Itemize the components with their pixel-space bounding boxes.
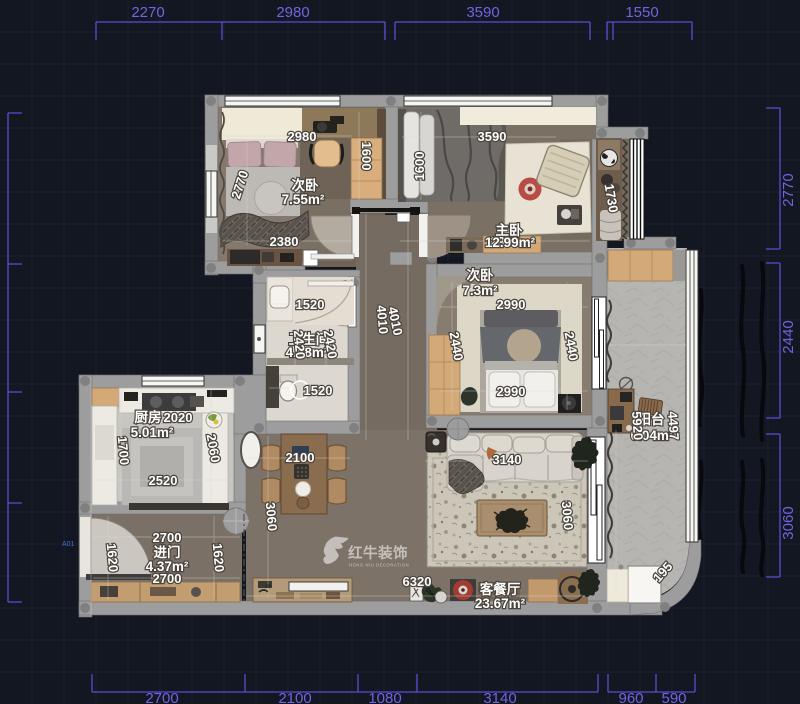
svg-text:6320: 6320 <box>403 574 432 589</box>
svg-text:次卧: 次卧 <box>467 267 494 283</box>
svg-text:5920: 5920 <box>629 411 646 441</box>
svg-text:2420: 2420 <box>291 330 308 360</box>
svg-text:厨房: 厨房 <box>135 409 162 425</box>
svg-text:1550: 1550 <box>625 4 658 21</box>
svg-text:1080: 1080 <box>368 690 401 704</box>
svg-text:客餐厅: 客餐厅 <box>479 581 521 597</box>
svg-text:5.01m²: 5.01m² <box>131 425 174 440</box>
svg-text:12.99m²: 12.99m² <box>485 235 536 250</box>
svg-text:2700: 2700 <box>153 571 182 586</box>
svg-text:2270: 2270 <box>131 4 164 21</box>
svg-text:1520: 1520 <box>304 383 333 398</box>
svg-text:7.3m²: 7.3m² <box>462 283 498 298</box>
svg-text:2990: 2990 <box>497 297 526 312</box>
svg-text:进门: 进门 <box>154 544 181 560</box>
svg-text:2980: 2980 <box>288 129 317 144</box>
svg-text:次卧: 次卧 <box>292 177 319 193</box>
svg-text:3060: 3060 <box>559 501 576 531</box>
svg-text:960: 960 <box>618 690 643 704</box>
svg-text:2440: 2440 <box>780 320 797 353</box>
svg-text:3060: 3060 <box>780 506 797 539</box>
svg-text:1520: 1520 <box>296 297 325 312</box>
svg-text:23.67m²: 23.67m² <box>475 596 526 611</box>
svg-text:HONG NIU DECORATION: HONG NIU DECORATION <box>349 563 409 568</box>
svg-text:3140: 3140 <box>493 452 522 467</box>
svg-text:1620: 1620 <box>210 543 227 573</box>
svg-text:2770: 2770 <box>780 173 797 206</box>
svg-text:1600: 1600 <box>359 142 374 171</box>
svg-text:2700: 2700 <box>153 530 182 545</box>
svg-text:2380: 2380 <box>270 234 299 249</box>
svg-text:2100: 2100 <box>278 690 311 704</box>
svg-text:1600: 1600 <box>412 152 427 181</box>
svg-text:590: 590 <box>661 690 686 704</box>
svg-text:4497: 4497 <box>665 411 682 441</box>
svg-text:3140: 3140 <box>483 690 516 704</box>
svg-text:3590: 3590 <box>478 129 507 144</box>
svg-text:2990: 2990 <box>497 384 526 399</box>
svg-text:3590: 3590 <box>466 4 499 21</box>
svg-text:3060: 3060 <box>263 502 280 532</box>
svg-text:1700: 1700 <box>115 436 132 466</box>
svg-text:2020: 2020 <box>164 410 193 425</box>
svg-text:2520: 2520 <box>149 473 178 488</box>
svg-text:2100: 2100 <box>286 450 315 465</box>
svg-text:A01: A01 <box>62 541 75 548</box>
svg-text:2700: 2700 <box>145 690 178 704</box>
svg-text:7.55m²: 7.55m² <box>282 192 325 207</box>
svg-text:2980: 2980 <box>276 4 309 21</box>
svg-text:红牛装饰: 红牛装饰 <box>348 544 408 562</box>
svg-text:1620: 1620 <box>104 543 121 573</box>
